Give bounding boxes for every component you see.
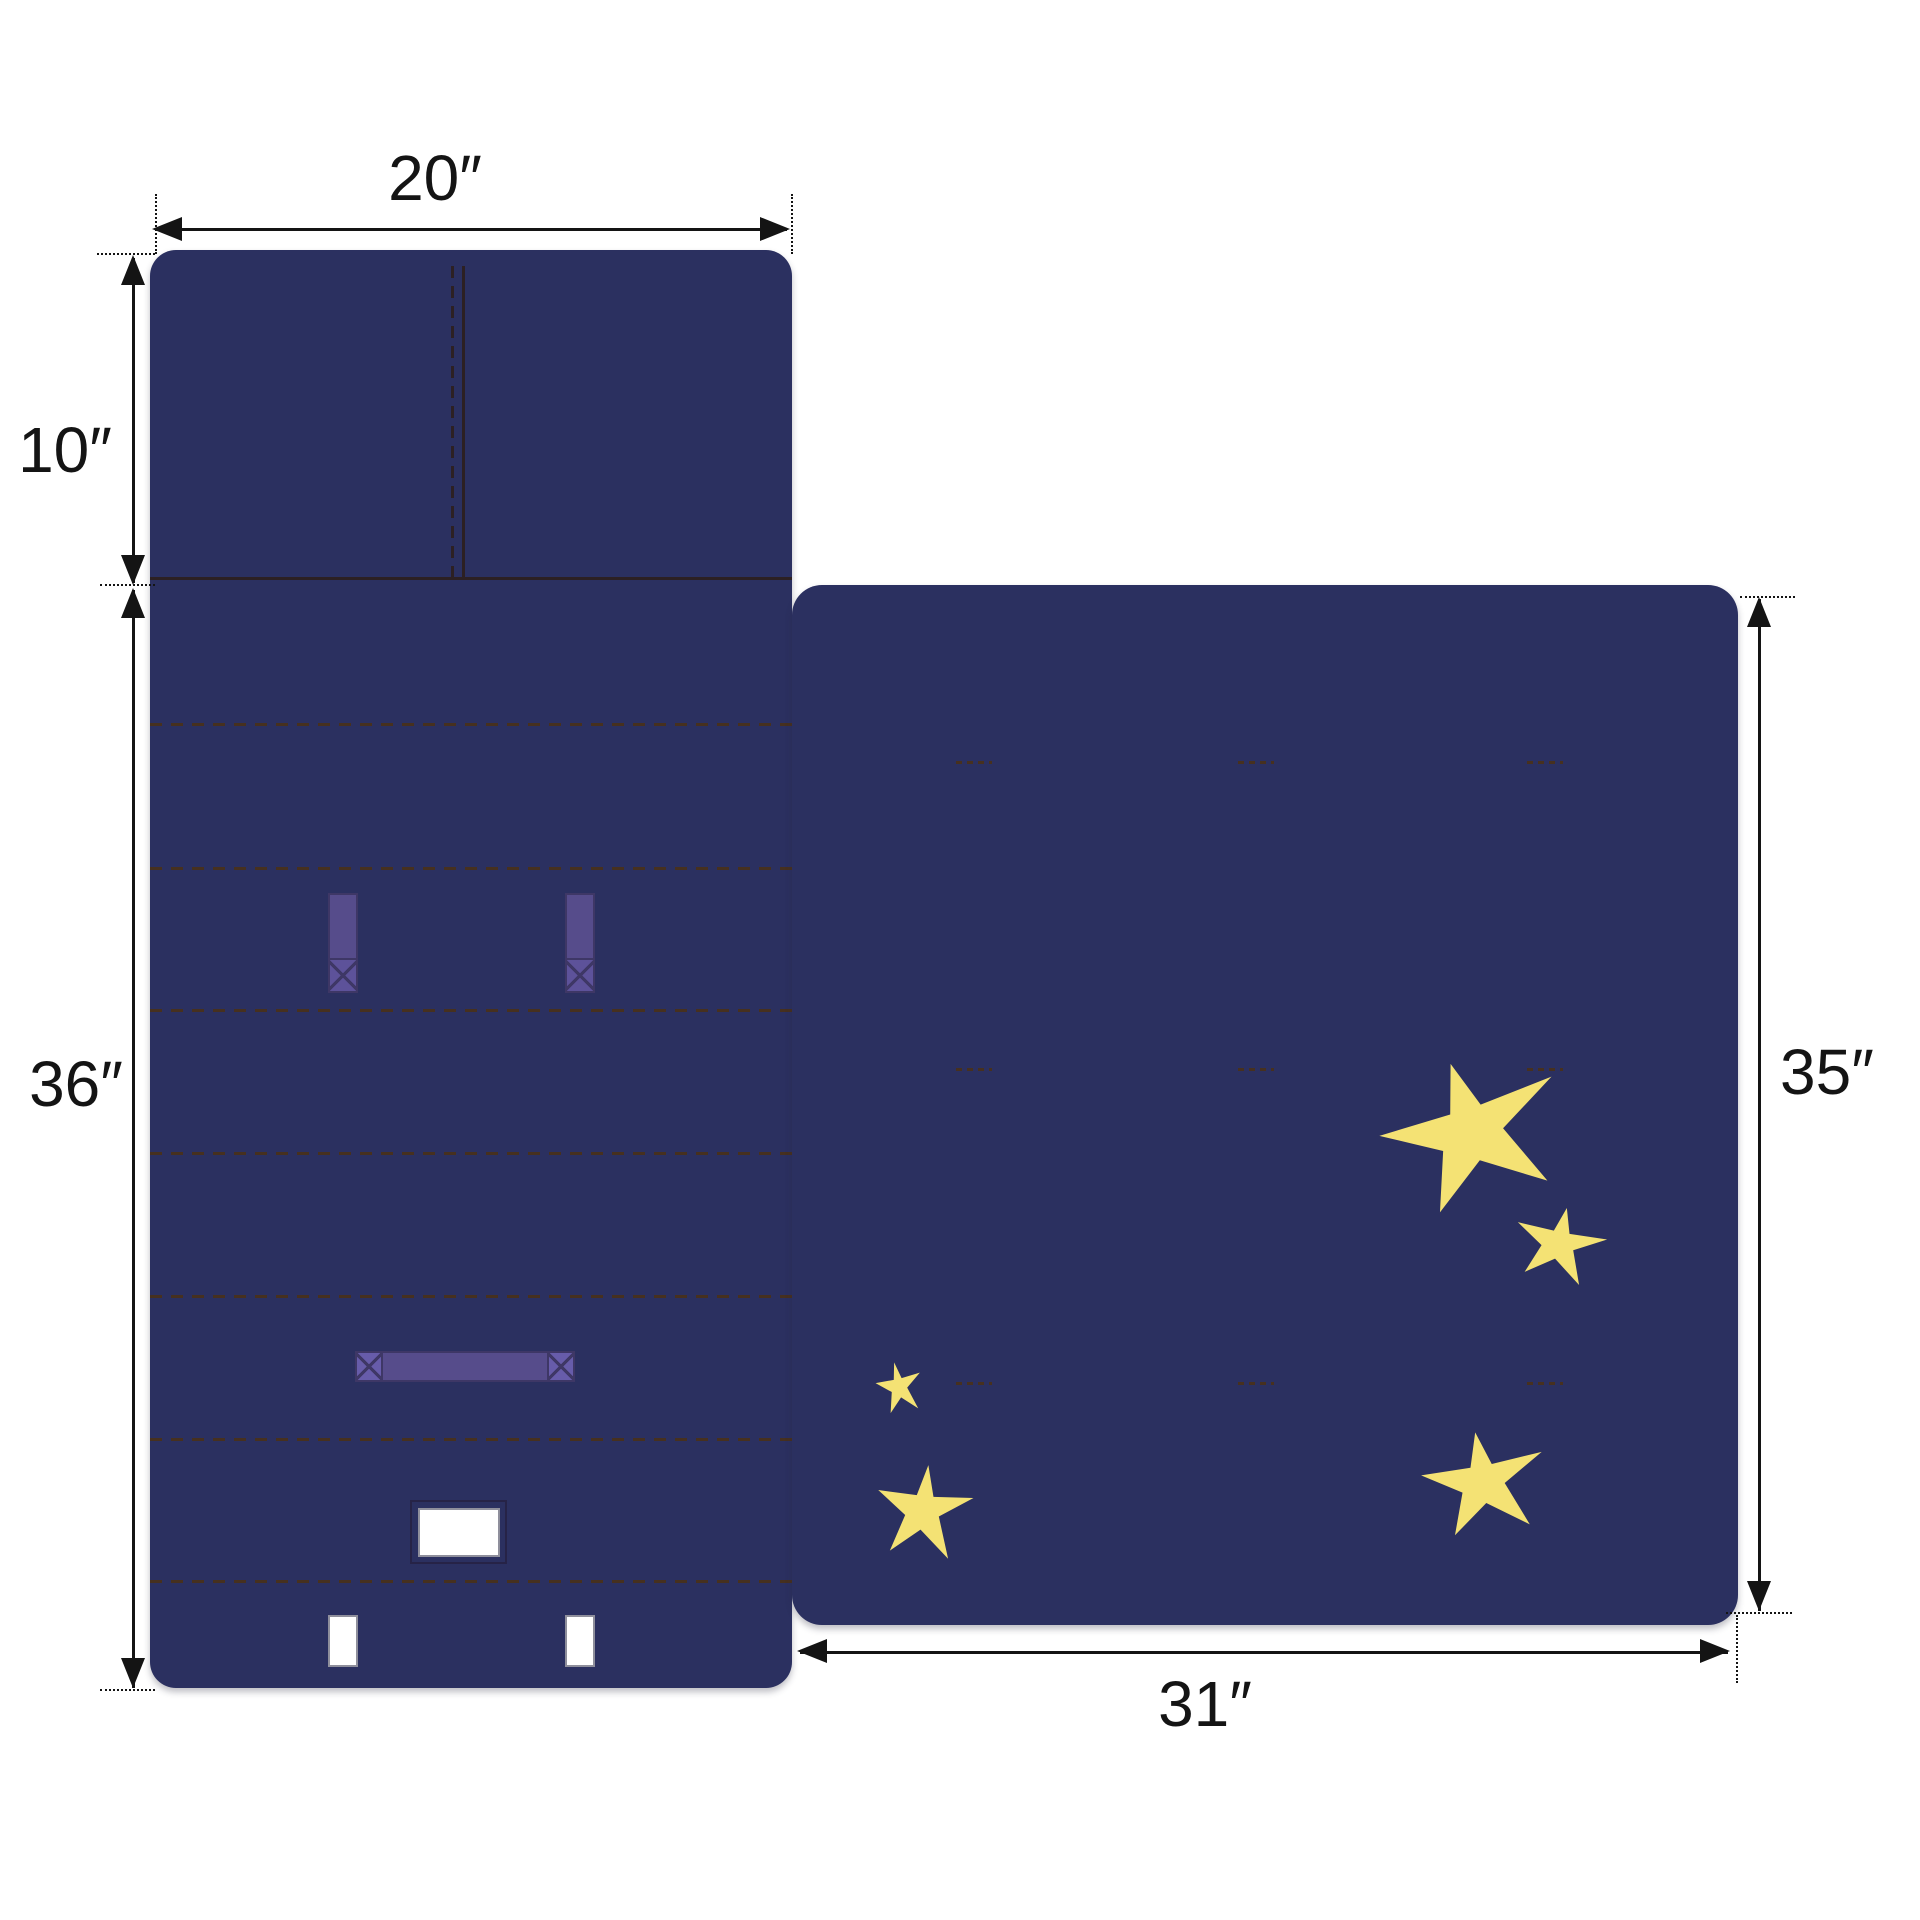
tuft-stitch-mark [956,761,992,764]
left-vertical-strap [328,893,358,993]
dim-label-blanket-height: 35″ [1780,1040,1874,1104]
tuft-stitch-mark [956,1068,992,1071]
arrow-up-icon [1747,597,1771,627]
quilt-stitch-line [150,867,792,870]
quilt-stitch-line [150,723,792,726]
name-tag-window [418,1508,500,1557]
strap-x-stitch-box [357,1353,381,1380]
pillow-seam-line [150,577,792,580]
extension-line [1740,596,1795,598]
strap-webbing [330,895,356,958]
pillow-center-seam-solid [462,266,465,577]
dim-label-pillow-height: 10″ [0,418,130,482]
arrow-down-icon [1747,1581,1771,1611]
star-icon [870,1355,930,1419]
strap-x-stitch-box [549,1353,573,1380]
dim-label-mat-body-height: 36″ [10,1052,142,1116]
quilt-stitch-line [150,1438,792,1441]
product-dimension-diagram: 20″ 10″ 36″ 35″ 31″ [0,0,1920,1920]
extension-line [100,584,155,586]
star-icon [1409,1417,1561,1549]
tuft-stitch-mark [1238,1382,1274,1385]
dim-line-mat-width [165,228,787,231]
extension-line [155,194,157,254]
carry-handle-strap [355,1351,575,1382]
right-vertical-strap [565,893,595,993]
quilt-stitch-line [150,1295,792,1298]
buckle-slot-right [565,1615,595,1667]
tuft-stitch-mark [1238,761,1274,764]
mat-back-panel [150,250,792,1688]
blanket-panel [792,585,1738,1625]
extension-line [1736,1615,1738,1683]
arrow-up-icon [121,588,145,618]
strap-webbing [567,895,593,958]
extension-line [97,253,155,255]
extension-line [791,194,793,254]
arrow-down-icon [121,555,145,585]
quilt-stitch-line [150,1580,792,1583]
buckle-slot-left [328,1615,358,1667]
tuft-stitch-mark [1527,1382,1563,1385]
pillow-center-seam-dashed [451,266,454,577]
dim-line-blanket-width [800,1651,1728,1654]
arrow-right-icon [760,217,790,241]
dim-line-pillow-height [132,258,135,583]
extension-line [100,1689,155,1691]
star-icon [867,1457,982,1567]
quilt-stitch-line [150,1152,792,1155]
arrow-down-icon [121,1658,145,1688]
arrow-right-icon [1700,1639,1730,1663]
quilt-stitch-line [150,1009,792,1012]
arrow-left-icon [797,1639,827,1663]
dim-line-mat-body-height [132,590,135,1688]
dim-line-blanket-height [1758,599,1761,1611]
extension-line [1726,1612,1792,1614]
strap-webbing [381,1353,549,1380]
tuft-stitch-mark [1527,761,1563,764]
arrow-up-icon [121,255,145,285]
tuft-stitch-mark [1238,1068,1274,1071]
strap-x-stitch-box [330,958,356,991]
star-icon [1503,1195,1617,1294]
dim-label-mat-width: 20″ [335,146,535,210]
dim-label-blanket-width: 31″ [1105,1672,1305,1736]
tuft-stitch-mark [956,1382,992,1385]
strap-x-stitch-box [567,958,593,991]
